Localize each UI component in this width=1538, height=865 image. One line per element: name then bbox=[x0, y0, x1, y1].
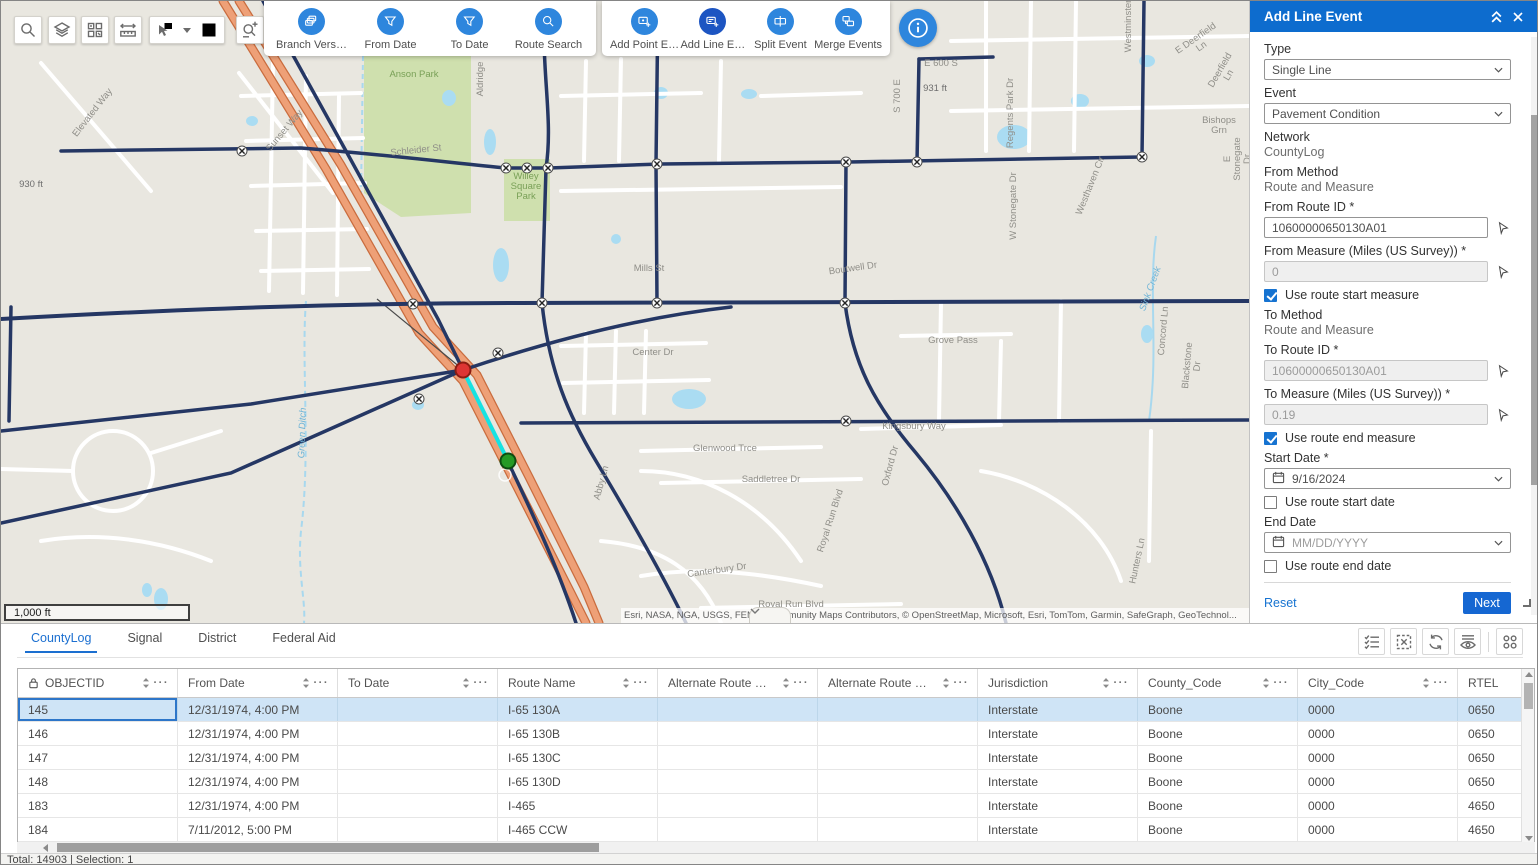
column-menu-icon[interactable]: ··· bbox=[1114, 677, 1130, 689]
to-measure-label: To Measure (Miles (US Survey)) * bbox=[1264, 387, 1511, 401]
attribution-collapse-button[interactable] bbox=[749, 607, 791, 623]
table-cell[interactable]: Boone bbox=[1138, 818, 1298, 841]
table-cell[interactable]: 0650 bbox=[1458, 770, 1530, 793]
table-cell[interactable]: 0000 bbox=[1298, 794, 1458, 817]
table-cell[interactable]: Boone bbox=[1138, 746, 1298, 769]
table-cell[interactable] bbox=[818, 746, 978, 769]
sort-icon[interactable] bbox=[462, 677, 470, 689]
tab-federal-aid[interactable]: Federal Aid bbox=[272, 631, 335, 653]
table-cell[interactable] bbox=[338, 818, 498, 841]
column-header-jurisdiction[interactable]: Jurisdiction··· bbox=[978, 669, 1138, 697]
map-pick-arrow-icon bbox=[1496, 408, 1510, 422]
table-cell[interactable]: 146 bbox=[18, 722, 178, 745]
scrollbar-thumb[interactable] bbox=[1531, 115, 1538, 485]
chevron-down-icon bbox=[1494, 67, 1503, 73]
column-label: County_Code bbox=[1148, 676, 1258, 690]
table-tool-select-records[interactable] bbox=[1358, 628, 1385, 655]
sort-icon[interactable] bbox=[782, 677, 790, 689]
table-cell[interactable]: 147 bbox=[18, 746, 178, 769]
table-cell[interactable]: 0000 bbox=[1298, 698, 1458, 721]
table-cell[interactable]: 12/31/1974, 4:00 PM bbox=[178, 746, 338, 769]
column-menu-icon[interactable]: ··· bbox=[154, 677, 170, 689]
table-cell[interactable]: 145 bbox=[18, 698, 178, 721]
table-cell[interactable]: 0000 bbox=[1298, 746, 1458, 769]
select-dropdown-caret[interactable] bbox=[180, 17, 194, 43]
tool-label: Split Event bbox=[754, 39, 807, 51]
panel-scrollbar[interactable] bbox=[1531, 37, 1538, 615]
table-cell[interactable] bbox=[338, 770, 498, 793]
table-tool-refresh[interactable] bbox=[1422, 628, 1449, 655]
checkbox bbox=[1264, 496, 1277, 509]
column-menu-icon[interactable]: ··· bbox=[634, 677, 650, 689]
table-tool-options-grid[interactable] bbox=[1496, 628, 1523, 655]
column-label: RTEL bbox=[1468, 676, 1521, 690]
table-row[interactable]: 1847/11/2012, 5:00 PMI-465 CCWInterstate… bbox=[18, 818, 1534, 842]
table-cell[interactable]: I-465 CCW bbox=[498, 818, 658, 841]
selection-tool-group bbox=[149, 16, 225, 44]
tool-split-event[interactable]: Split Event bbox=[747, 8, 815, 51]
table-cell[interactable]: I-65 130D bbox=[498, 770, 658, 793]
table-tabs: CountyLogSignalDistrictFederal Aid bbox=[31, 631, 336, 653]
table-cell[interactable] bbox=[658, 794, 818, 817]
table-cell[interactable] bbox=[818, 698, 978, 721]
checkbox-label: Use route start date bbox=[1285, 495, 1395, 509]
tab-district[interactable]: District bbox=[198, 631, 236, 653]
divider bbox=[1488, 632, 1489, 652]
column-label: From Date bbox=[188, 676, 298, 690]
scroll-left-arrow[interactable] bbox=[43, 844, 48, 852]
end-date-picker[interactable]: MM/DD/YYYY bbox=[1264, 532, 1511, 553]
table-row[interactable]: 18312/31/1974, 4:00 PMI-465InterstateBoo… bbox=[18, 794, 1534, 818]
column-label: OBJECTID bbox=[45, 676, 138, 690]
column-menu-icon[interactable]: ··· bbox=[314, 677, 330, 689]
add-line-event-icon bbox=[699, 8, 726, 35]
double-chevron-up-icon bbox=[1490, 10, 1503, 23]
table-cell[interactable] bbox=[818, 794, 978, 817]
to-method-label: To Method bbox=[1264, 308, 1511, 322]
calendar-icon bbox=[1272, 535, 1285, 551]
table-cell[interactable] bbox=[338, 746, 498, 769]
table-cell[interactable]: 0650 bbox=[1458, 722, 1530, 745]
table-cell[interactable]: 183 bbox=[18, 794, 178, 817]
from-method-value: Route and Measure bbox=[1264, 180, 1511, 194]
map-tool-layers[interactable] bbox=[48, 16, 76, 44]
panel-resize-handle[interactable] bbox=[1523, 599, 1531, 607]
event-value: Pavement Condition bbox=[1272, 107, 1494, 121]
table-row[interactable]: 14612/31/1974, 4:00 PMI-65 130BInterstat… bbox=[18, 722, 1534, 746]
sort-icon[interactable] bbox=[1422, 677, 1430, 689]
pick-from-route-button[interactable] bbox=[1495, 220, 1511, 236]
add-line-event-panel: Add Line Event Type Single Line Event Pa… bbox=[1249, 1, 1538, 623]
sort-icon[interactable] bbox=[302, 677, 310, 689]
table-cell[interactable] bbox=[658, 698, 818, 721]
use-route-start-date-checkbox[interactable]: Use route start date bbox=[1264, 495, 1511, 509]
column-header-objectid[interactable]: OBJECTID··· bbox=[18, 669, 178, 697]
column-header-county-code[interactable]: County_Code··· bbox=[1138, 669, 1298, 697]
table-status-bar: Total: 14903 | Selection: 1 bbox=[1, 853, 1538, 865]
checkbox bbox=[1264, 289, 1277, 302]
type-value: Single Line bbox=[1272, 63, 1494, 77]
tool-route-search[interactable]: Route Search bbox=[512, 8, 586, 51]
table-cell[interactable]: I-65 130A bbox=[498, 698, 658, 721]
scale-bar-text: 1,000 ft bbox=[14, 607, 51, 619]
table-body: 14512/31/1974, 4:00 PMI-65 130AInterstat… bbox=[18, 698, 1534, 842]
table-cell[interactable]: Interstate bbox=[978, 722, 1138, 745]
map-tool-select[interactable] bbox=[150, 17, 180, 43]
column-menu-icon[interactable]: ··· bbox=[954, 677, 970, 689]
event-label: Event bbox=[1264, 86, 1511, 100]
add-point-event-icon bbox=[631, 8, 658, 35]
table-cell[interactable] bbox=[818, 722, 978, 745]
map-tool-search[interactable] bbox=[14, 16, 42, 44]
map-tool-basemap-grid[interactable] bbox=[81, 16, 109, 44]
table-cell[interactable]: 12/31/1974, 4:00 PM bbox=[178, 770, 338, 793]
table-cell[interactable] bbox=[658, 746, 818, 769]
column-label: Route Name bbox=[508, 676, 618, 690]
column-label: Jurisdiction bbox=[988, 676, 1098, 690]
table-cell[interactable] bbox=[338, 698, 498, 721]
table-tool-show-selected[interactable] bbox=[1454, 628, 1481, 655]
table-cell[interactable]: Boone bbox=[1138, 698, 1298, 721]
table-cell[interactable]: 0000 bbox=[1298, 770, 1458, 793]
table-cell[interactable]: Boone bbox=[1138, 794, 1298, 817]
collapse-panel-button[interactable] bbox=[1485, 6, 1507, 28]
from-measure-label: From Measure (Miles (US Survey)) * bbox=[1264, 244, 1511, 258]
pick-to-route-button[interactable] bbox=[1495, 363, 1511, 379]
table-cell[interactable]: Boone bbox=[1138, 722, 1298, 745]
tool-branch-vers-[interactable]: Branch Vers… bbox=[275, 8, 349, 51]
from-measure-input[interactable]: 0 bbox=[1264, 261, 1488, 282]
tool-from-date[interactable]: From Date bbox=[354, 8, 428, 51]
start-date-picker[interactable]: 9/16/2024 bbox=[1264, 468, 1511, 489]
table-cell[interactable] bbox=[818, 770, 978, 793]
filter-icon bbox=[377, 8, 404, 35]
table-cell[interactable]: 7/11/2012, 5:00 PM bbox=[178, 818, 338, 841]
filter-tools-panel: Branch Vers…From DateTo DateRoute Search bbox=[264, 1, 596, 56]
checkbox bbox=[1264, 432, 1277, 445]
type-select[interactable]: Single Line bbox=[1264, 59, 1511, 80]
filter-icon bbox=[456, 8, 483, 35]
column-header-from-date[interactable]: From Date··· bbox=[178, 669, 338, 697]
scrollbar-thumb[interactable] bbox=[57, 843, 599, 852]
next-button[interactable]: Next bbox=[1463, 592, 1511, 614]
from-method-label: From Method bbox=[1264, 165, 1511, 179]
chevron-down-icon bbox=[750, 608, 760, 614]
table-cell[interactable]: I-65 130B bbox=[498, 722, 658, 745]
column-label: Alternate Route … bbox=[828, 676, 938, 690]
table-cell[interactable]: 4650 bbox=[1458, 794, 1530, 817]
network-label: Network bbox=[1264, 130, 1511, 144]
chevron-down-icon bbox=[1494, 540, 1503, 546]
start-date-label: Start Date * bbox=[1264, 451, 1511, 465]
pick-from-measure-button[interactable] bbox=[1495, 264, 1511, 280]
type-label: Type bbox=[1264, 42, 1511, 56]
column-header-alternate-route-[interactable]: Alternate Route …··· bbox=[818, 669, 978, 697]
table-cell[interactable]: Interstate bbox=[978, 818, 1138, 841]
tab-countylog[interactable]: CountyLog bbox=[31, 631, 91, 653]
table-cell[interactable]: 0650 bbox=[1458, 746, 1530, 769]
sort-icon[interactable] bbox=[1262, 677, 1270, 689]
tabs-underline bbox=[17, 657, 1523, 658]
sort-icon[interactable] bbox=[142, 677, 150, 689]
scroll-down-arrow[interactable] bbox=[1525, 836, 1533, 841]
table-cell[interactable] bbox=[658, 818, 818, 841]
tool-add-point-e-[interactable]: Add Point E… bbox=[610, 8, 679, 51]
reset-link[interactable]: Reset bbox=[1264, 596, 1297, 610]
table-cell[interactable] bbox=[658, 722, 818, 745]
column-label: To Date bbox=[348, 676, 458, 690]
divider bbox=[1264, 582, 1511, 583]
table-cell[interactable] bbox=[658, 770, 818, 793]
table-horizontal-scrollbar[interactable] bbox=[17, 842, 1535, 853]
map-attribution: Esri, NASA, NGA, USGS, FEMA | Community … bbox=[621, 608, 1249, 623]
sort-icon[interactable] bbox=[622, 677, 630, 689]
table-cell[interactable]: 4650 bbox=[1458, 818, 1530, 841]
tool-label: Add Point E… bbox=[610, 39, 679, 51]
tool-to-date[interactable]: To Date bbox=[433, 8, 507, 51]
table-header-row: OBJECTID···From Date···To Date···Route N… bbox=[18, 669, 1534, 698]
table-row[interactable]: 14712/31/1974, 4:00 PMI-65 130CInterstat… bbox=[18, 746, 1534, 770]
use-route-end-date-checkbox[interactable]: Use route end date bbox=[1264, 559, 1511, 573]
table-cell[interactable]: 184 bbox=[18, 818, 178, 841]
tool-label: From Date bbox=[365, 39, 417, 51]
info-button[interactable] bbox=[899, 9, 937, 47]
table-cell[interactable]: 0000 bbox=[1298, 722, 1458, 745]
table-cell[interactable] bbox=[338, 794, 498, 817]
table-cell[interactable]: Interstate bbox=[978, 794, 1138, 817]
map-pick-arrow-icon bbox=[1496, 221, 1510, 235]
table-row[interactable]: 14512/31/1974, 4:00 PMI-65 130AInterstat… bbox=[18, 698, 1534, 722]
to-measure-input[interactable]: 0.19 bbox=[1264, 404, 1488, 425]
column-menu-icon[interactable]: ··· bbox=[794, 677, 810, 689]
attribute-table: OBJECTID···From Date···To Date···Route N… bbox=[17, 668, 1535, 845]
table-cell[interactable]: 12/31/1974, 4:00 PM bbox=[178, 794, 338, 817]
map-tool-route-sketch[interactable] bbox=[236, 16, 264, 44]
table-toolbar bbox=[1358, 628, 1523, 655]
map-tool-measure[interactable] bbox=[114, 16, 142, 44]
chevron-down-icon bbox=[1494, 111, 1503, 117]
map-pick-arrow-icon bbox=[1496, 364, 1510, 378]
table-cell[interactable]: 12/31/1974, 4:00 PM bbox=[178, 698, 338, 721]
column-label: Alternate Route … bbox=[668, 676, 778, 690]
column-menu-icon[interactable]: ··· bbox=[474, 677, 490, 689]
table-cell[interactable]: Interstate bbox=[978, 770, 1138, 793]
end-date-label: End Date bbox=[1264, 515, 1511, 529]
tool-label: To Date bbox=[451, 39, 489, 51]
to-route-id-input[interactable]: 10600000650130A01 bbox=[1264, 360, 1488, 381]
tool-label: Branch Vers… bbox=[276, 39, 347, 51]
calendar-icon bbox=[1272, 471, 1285, 487]
panel-header: Add Line Event bbox=[1250, 1, 1538, 32]
column-header-alternate-route-[interactable]: Alternate Route …··· bbox=[658, 669, 818, 697]
to-method-value: Route and Measure bbox=[1264, 323, 1511, 337]
column-menu-icon[interactable]: ··· bbox=[1434, 677, 1450, 689]
checkbox bbox=[1264, 560, 1277, 573]
table-cell[interactable] bbox=[818, 818, 978, 841]
table-cell[interactable]: 0000 bbox=[1298, 818, 1458, 841]
tab-signal[interactable]: Signal bbox=[127, 631, 162, 653]
checkbox-label: Use route start measure bbox=[1285, 288, 1419, 302]
map-graphics bbox=[1, 1, 1249, 623]
table-row[interactable]: 14812/31/1974, 4:00 PMI-65 130DInterstat… bbox=[18, 770, 1534, 794]
table-tool-clear-table-selection[interactable] bbox=[1390, 628, 1417, 655]
table-cell[interactable] bbox=[338, 722, 498, 745]
table-cell[interactable]: 12/31/1974, 4:00 PM bbox=[178, 722, 338, 745]
attribute-table-panel: CountyLogSignalDistrictFederal Aid OBJEC… bbox=[1, 623, 1538, 865]
tool-label: Merge Events bbox=[814, 39, 882, 51]
table-vertical-scrollbar[interactable] bbox=[1521, 669, 1534, 844]
column-menu-icon[interactable]: ··· bbox=[1274, 677, 1290, 689]
table-cell[interactable]: 148 bbox=[18, 770, 178, 793]
column-label: City_Code bbox=[1308, 676, 1418, 690]
from-route-id-label: From Route ID * bbox=[1264, 200, 1511, 214]
app-window: Elevated WaySunset WayAnson ParkAldridge… bbox=[0, 0, 1538, 865]
table-cell[interactable]: I-65 130C bbox=[498, 746, 658, 769]
panel-title: Add Line Event bbox=[1264, 9, 1485, 24]
map-canvas[interactable]: Elevated WaySunset WayAnson ParkAldridge… bbox=[1, 1, 1249, 623]
table-cell[interactable]: Interstate bbox=[978, 698, 1138, 721]
table-cell[interactable]: 0650 bbox=[1458, 698, 1530, 721]
panel-body: Type Single Line Event Pavement Conditio… bbox=[1250, 32, 1538, 614]
event-tools-panel: Add Point E…Add Line E…Split EventMerge … bbox=[602, 1, 890, 56]
column-header-route-name[interactable]: Route Name··· bbox=[498, 669, 658, 697]
tool-label: Add Line E… bbox=[680, 39, 745, 51]
table-cell[interactable]: Interstate bbox=[978, 746, 1138, 769]
scroll-up-arrow[interactable] bbox=[1525, 672, 1533, 677]
merge-events-icon bbox=[835, 8, 862, 35]
event-select[interactable]: Pavement Condition bbox=[1264, 103, 1511, 124]
sort-icon[interactable] bbox=[1102, 677, 1110, 689]
lock-icon bbox=[28, 677, 39, 689]
map-pick-arrow-icon bbox=[1496, 265, 1510, 279]
use-route-start-measure-checkbox[interactable]: Use route start measure bbox=[1264, 288, 1511, 302]
to-route-id-label: To Route ID * bbox=[1264, 343, 1511, 357]
network-value: CountyLog bbox=[1264, 145, 1511, 159]
close-icon bbox=[1512, 11, 1524, 23]
checkbox-label: Use route end date bbox=[1285, 559, 1391, 573]
table-cell[interactable]: I-465 bbox=[498, 794, 658, 817]
tool-add-line-e-[interactable]: Add Line E… bbox=[679, 8, 747, 51]
table-cell[interactable]: Boone bbox=[1138, 770, 1298, 793]
chevron-down-icon bbox=[1494, 476, 1503, 482]
scrollbar-thumb[interactable] bbox=[1524, 683, 1533, 709]
close-panel-button[interactable] bbox=[1507, 6, 1529, 28]
map-tool-clear-selection[interactable] bbox=[194, 17, 224, 43]
info-icon bbox=[907, 17, 929, 39]
column-header-rtel[interactable]: RTEL bbox=[1458, 669, 1530, 697]
map-scale-bar: 1,000 ft bbox=[4, 604, 190, 621]
pick-to-measure-button[interactable] bbox=[1495, 407, 1511, 423]
start-date-value: 9/16/2024 bbox=[1292, 472, 1494, 486]
branch-version-icon bbox=[298, 8, 325, 35]
use-route-end-measure-checkbox[interactable]: Use route end measure bbox=[1264, 431, 1511, 445]
split-event-icon bbox=[767, 8, 794, 35]
sort-icon[interactable] bbox=[942, 677, 950, 689]
column-header-to-date[interactable]: To Date··· bbox=[338, 669, 498, 697]
tool-merge-events[interactable]: Merge Events bbox=[814, 8, 882, 51]
from-route-id-input[interactable]: 10600000650130A01 bbox=[1264, 217, 1488, 238]
route-search-icon bbox=[535, 8, 562, 35]
checkbox-label: Use route end measure bbox=[1285, 431, 1416, 445]
tool-label: Route Search bbox=[515, 39, 582, 51]
column-header-city-code[interactable]: City_Code··· bbox=[1298, 669, 1458, 697]
end-date-placeholder: MM/DD/YYYY bbox=[1292, 536, 1494, 550]
